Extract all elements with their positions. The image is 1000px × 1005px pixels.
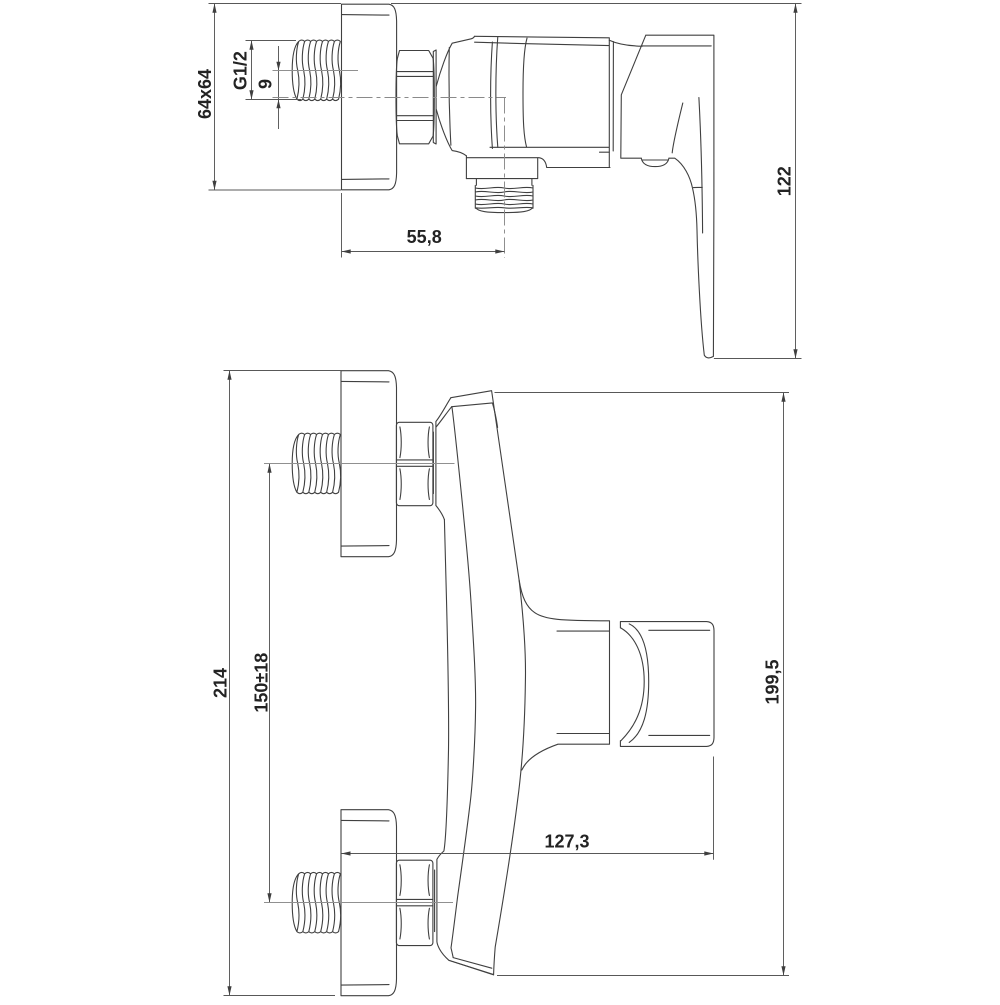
svg-text:214: 214 bbox=[211, 668, 231, 698]
svg-text:55,8: 55,8 bbox=[407, 227, 442, 247]
svg-text:122: 122 bbox=[775, 166, 795, 196]
svg-text:127,3: 127,3 bbox=[544, 832, 589, 852]
svg-text:G1/2: G1/2 bbox=[231, 51, 251, 90]
svg-text:9: 9 bbox=[256, 79, 276, 89]
svg-text:64x64: 64x64 bbox=[195, 69, 215, 119]
svg-text:150±18: 150±18 bbox=[252, 653, 272, 713]
svg-text:199,5: 199,5 bbox=[763, 659, 783, 704]
